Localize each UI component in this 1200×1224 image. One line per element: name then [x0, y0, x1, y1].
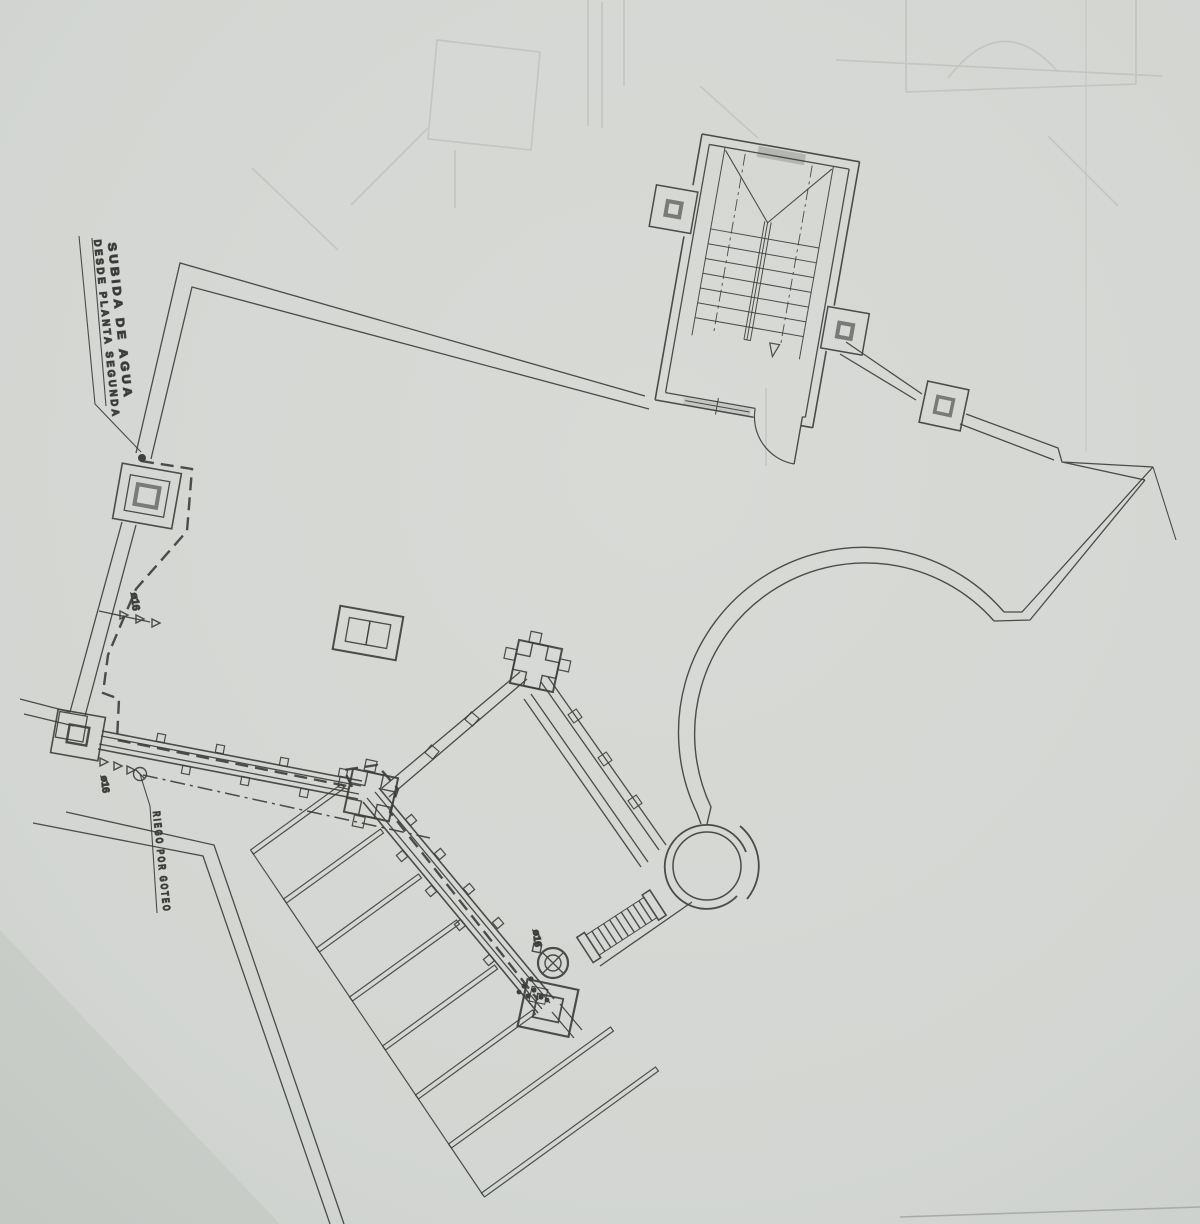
- pipe-connection-dot: [138, 454, 146, 462]
- pipe-dia-label-left: ø16: [128, 592, 142, 611]
- plan-canvas: SUBIDA DE AGUA DESDE PLANTA SEGUNDA RIEG…: [0, 0, 1200, 1224]
- floor-plan-photo: SUBIDA DE AGUA DESDE PLANTA SEGUNDA RIEG…: [0, 0, 1200, 1224]
- pipe-dia-label-bottom-left: ø16: [98, 775, 111, 794]
- pipe-dia-label-center: ø16: [530, 929, 543, 948]
